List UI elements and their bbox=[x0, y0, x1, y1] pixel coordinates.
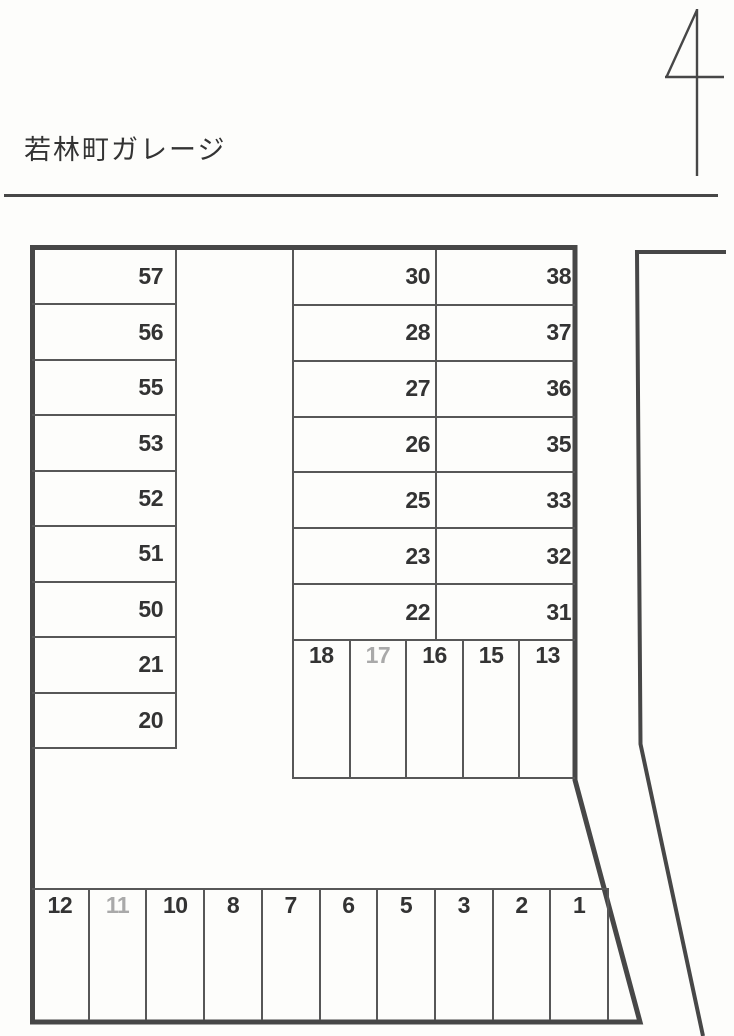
parking-stall-51: 51 bbox=[32, 527, 177, 582]
parking-stall-10: 10 bbox=[147, 890, 205, 1020]
stall-number: 6 bbox=[342, 894, 354, 917]
parking-stall-5: 5 bbox=[378, 890, 436, 1020]
parking-stall-27: 27 bbox=[294, 362, 435, 418]
stall-number: 36 bbox=[546, 377, 571, 400]
stall-number: 16 bbox=[422, 644, 447, 667]
stall-number: 50 bbox=[138, 598, 163, 621]
stall-number: 8 bbox=[227, 894, 239, 917]
stall-number: 55 bbox=[138, 376, 163, 399]
left-stall-column: 57 56 55 53 52 51 50 21 20 bbox=[32, 250, 177, 749]
parking-stall-53: 53 bbox=[32, 416, 177, 471]
parking-stall-1: 1 bbox=[551, 890, 607, 1020]
stall-number: 38 bbox=[546, 265, 571, 288]
parking-stall-35: 35 bbox=[437, 418, 575, 474]
parking-stall-26: 26 bbox=[294, 418, 435, 474]
stall-number: 25 bbox=[405, 489, 430, 512]
stall-number: 31 bbox=[546, 601, 571, 624]
parking-stall-6: 6 bbox=[321, 890, 379, 1020]
stall-number: 27 bbox=[405, 377, 430, 400]
stall-number: 33 bbox=[546, 489, 571, 512]
parking-stall-36: 36 bbox=[437, 362, 575, 418]
stall-number: 20 bbox=[138, 709, 163, 732]
stall-number: 17 bbox=[366, 644, 391, 667]
right-stall-column: 38 37 36 35 33 32 31 bbox=[437, 250, 575, 641]
parking-stall-18: 18 bbox=[294, 641, 351, 777]
stall-number: 57 bbox=[138, 265, 163, 288]
stall-number: 23 bbox=[405, 545, 430, 568]
stall-number: 10 bbox=[163, 894, 188, 917]
parking-stall-8: 8 bbox=[205, 890, 263, 1020]
stall-number: 35 bbox=[546, 433, 571, 456]
middle-stall-column: 30 28 27 26 25 23 22 bbox=[292, 250, 437, 641]
parking-stall-22: 22 bbox=[294, 585, 435, 641]
parking-stall-12: 12 bbox=[32, 890, 90, 1020]
stall-number: 3 bbox=[458, 894, 470, 917]
parking-stall-2: 2 bbox=[494, 890, 552, 1020]
stall-number: 32 bbox=[546, 545, 571, 568]
parking-stall-56: 56 bbox=[32, 305, 177, 360]
stall-number: 1 bbox=[573, 894, 585, 917]
parking-stall-52: 52 bbox=[32, 472, 177, 527]
parking-stall-28: 28 bbox=[294, 306, 435, 362]
stall-number: 18 bbox=[309, 644, 334, 667]
stall-number: 21 bbox=[138, 653, 163, 676]
stall-number: 51 bbox=[138, 542, 163, 565]
parking-stall-3: 3 bbox=[436, 890, 494, 1020]
stall-number: 2 bbox=[515, 894, 527, 917]
parking-stall-32: 32 bbox=[437, 529, 575, 585]
middle-stall-row: 18 17 16 15 13 bbox=[292, 641, 575, 779]
parking-stall-21: 21 bbox=[32, 638, 177, 693]
stall-number: 13 bbox=[535, 644, 560, 667]
stall-number: 12 bbox=[48, 894, 73, 917]
parking-stall-16: 16 bbox=[407, 641, 464, 777]
parking-stall-20: 20 bbox=[32, 694, 177, 749]
stall-number: 15 bbox=[479, 644, 504, 667]
parking-stall-57: 57 bbox=[32, 250, 177, 305]
scanned-garage-plan: 若林町ガレージ 57 56 55 53 52 51 50 21 20 30 28… bbox=[0, 0, 734, 1036]
stall-number: 56 bbox=[138, 321, 163, 344]
parking-stall-33: 33 bbox=[437, 473, 575, 529]
stall-number: 5 bbox=[400, 894, 412, 917]
parking-stall-25: 25 bbox=[294, 473, 435, 529]
road-edge-line bbox=[637, 252, 726, 1036]
stall-number: 22 bbox=[405, 601, 430, 624]
parking-stall-17: 17 bbox=[351, 641, 408, 777]
stall-number: 53 bbox=[138, 432, 163, 455]
stall-number: 11 bbox=[106, 894, 129, 917]
stall-number: 37 bbox=[546, 321, 571, 344]
stall-number: 52 bbox=[138, 487, 163, 510]
parking-stall-37: 37 bbox=[437, 306, 575, 362]
parking-stall-23: 23 bbox=[294, 529, 435, 585]
stall-number: 26 bbox=[405, 433, 430, 456]
parking-stall-38: 38 bbox=[437, 250, 575, 306]
bottom-stall-row: 12 11 10 8 7 6 5 3 2 1 bbox=[32, 888, 609, 1020]
parking-stall-13: 13 bbox=[520, 641, 575, 777]
parking-stall-30: 30 bbox=[294, 250, 435, 306]
parking-stall-11: 11 bbox=[90, 890, 148, 1020]
parking-stall-15: 15 bbox=[464, 641, 521, 777]
stall-number: 7 bbox=[285, 894, 297, 917]
corner-mark-4-icon bbox=[665, 9, 724, 176]
stall-number: 28 bbox=[405, 321, 430, 344]
parking-stall-50: 50 bbox=[32, 583, 177, 638]
stall-number: 30 bbox=[405, 265, 430, 288]
parking-stall-31: 31 bbox=[437, 585, 575, 641]
parking-stall-7: 7 bbox=[263, 890, 321, 1020]
parking-stall-55: 55 bbox=[32, 361, 177, 416]
